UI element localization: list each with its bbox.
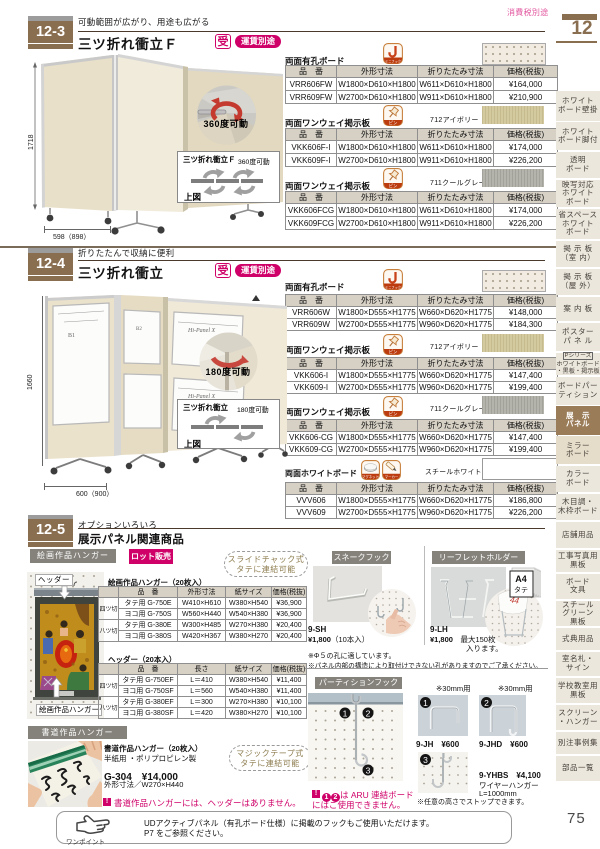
- svg-text:ピン: ピン: [389, 184, 398, 189]
- svg-text:マグネット: マグネット: [362, 474, 379, 479]
- svg-text:ピン: ピン: [389, 412, 398, 417]
- svg-text:タテ: タテ: [514, 585, 528, 594]
- svg-text:2: 2: [484, 698, 489, 708]
- svg-text:A4: A4: [515, 574, 527, 584]
- svg-text:B2: B2: [136, 327, 142, 332]
- svg-text:180度可動: 180度可動: [205, 366, 250, 377]
- svg-text:3: 3: [366, 766, 371, 776]
- svg-text:2: 2: [366, 709, 371, 719]
- svg-text:3: 3: [423, 755, 428, 765]
- svg-text:マーカー: マーカー: [385, 474, 399, 479]
- svg-text:1: 1: [423, 698, 428, 708]
- svg-text:ミニフック: ミニフック: [385, 58, 401, 63]
- svg-text:360度可動: 360度可動: [203, 118, 248, 129]
- svg-text:ピン: ピン: [389, 121, 398, 126]
- svg-text:1: 1: [343, 709, 348, 719]
- svg-text:ピン: ピン: [389, 350, 398, 355]
- svg-text:B1: B1: [68, 333, 75, 339]
- svg-text:ミニフック: ミニフック: [385, 284, 401, 289]
